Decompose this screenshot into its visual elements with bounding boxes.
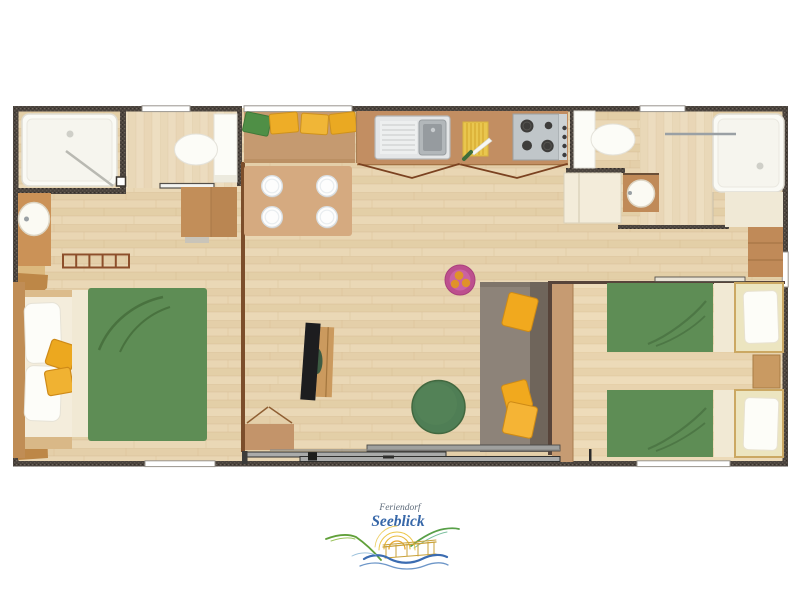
svg-text:Feriendorf: Feriendorf: [378, 502, 422, 513]
svg-text:Seeblick: Seeblick: [371, 513, 425, 530]
